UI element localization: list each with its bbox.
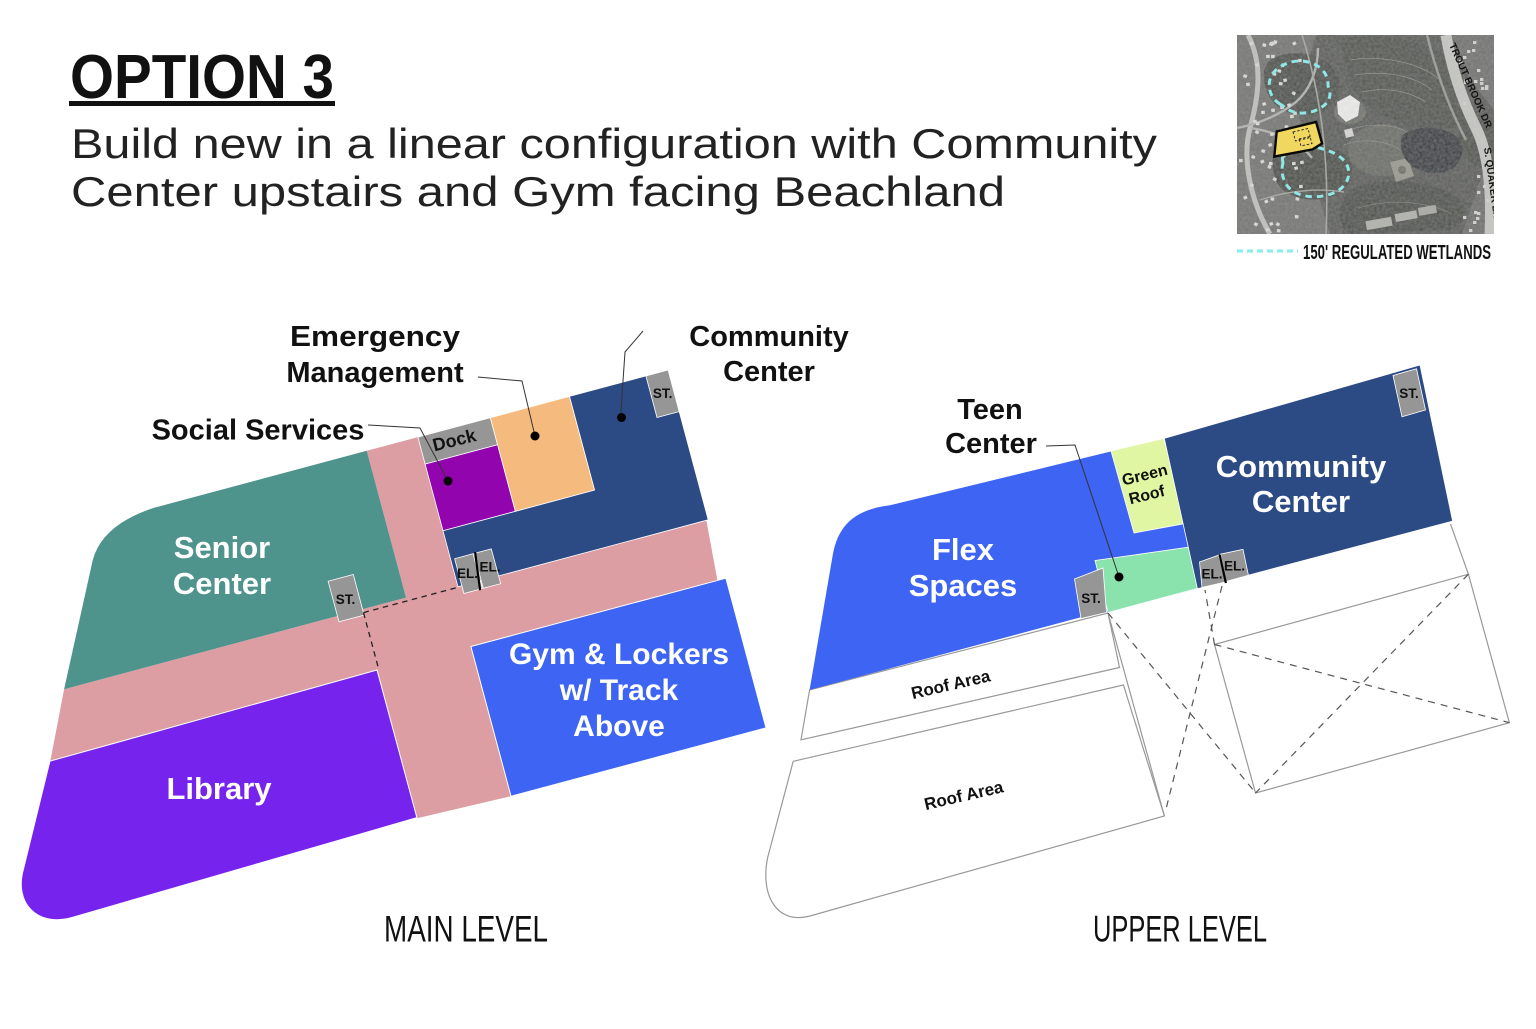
svg-text:Library: Library (166, 771, 272, 806)
svg-text:EL.: EL. (479, 560, 500, 575)
svg-text:Center: Center (723, 356, 815, 388)
svg-text:150' REGULATED WETLANDS: 150' REGULATED WETLANDS (1303, 242, 1491, 264)
svg-text:Teen: Teen (957, 394, 1023, 426)
svg-text:ST.: ST. (336, 592, 356, 607)
svg-text:Center: Center (1252, 484, 1350, 519)
svg-text:EL.: EL. (1224, 559, 1245, 574)
svg-text:ST.: ST. (653, 386, 673, 401)
svg-text:Gym & Lockers: Gym & Lockers (509, 638, 729, 671)
svg-text:UPPER LEVEL: UPPER LEVEL (1093, 909, 1267, 950)
svg-text:Spaces: Spaces (909, 568, 1018, 603)
svg-text:MAIN LEVEL: MAIN LEVEL (384, 909, 548, 950)
svg-text:Center: Center (945, 428, 1037, 460)
svg-text:Center upstairs and Gym facing: Center upstairs and Gym facing Beachland (71, 168, 1005, 215)
svg-text:EL.: EL. (1201, 567, 1222, 582)
svg-text:Community: Community (1216, 449, 1387, 484)
svg-text:ST.: ST. (1399, 386, 1419, 401)
svg-text:EL.: EL. (457, 566, 478, 581)
svg-text:Community: Community (689, 321, 849, 353)
svg-text:Social Services: Social Services (152, 415, 365, 447)
svg-text:w/ Track: w/ Track (559, 674, 679, 707)
svg-text:Build new in a linear configur: Build new in a linear configuration with… (71, 120, 1157, 167)
svg-text:Center: Center (173, 566, 271, 601)
svg-text:ST.: ST. (1081, 591, 1101, 606)
svg-text:Flex: Flex (932, 532, 995, 567)
svg-text:Senior: Senior (174, 530, 270, 565)
svg-text:Emergency: Emergency (290, 321, 460, 353)
svg-text:Above: Above (573, 710, 665, 743)
svg-text:Management: Management (286, 357, 464, 389)
